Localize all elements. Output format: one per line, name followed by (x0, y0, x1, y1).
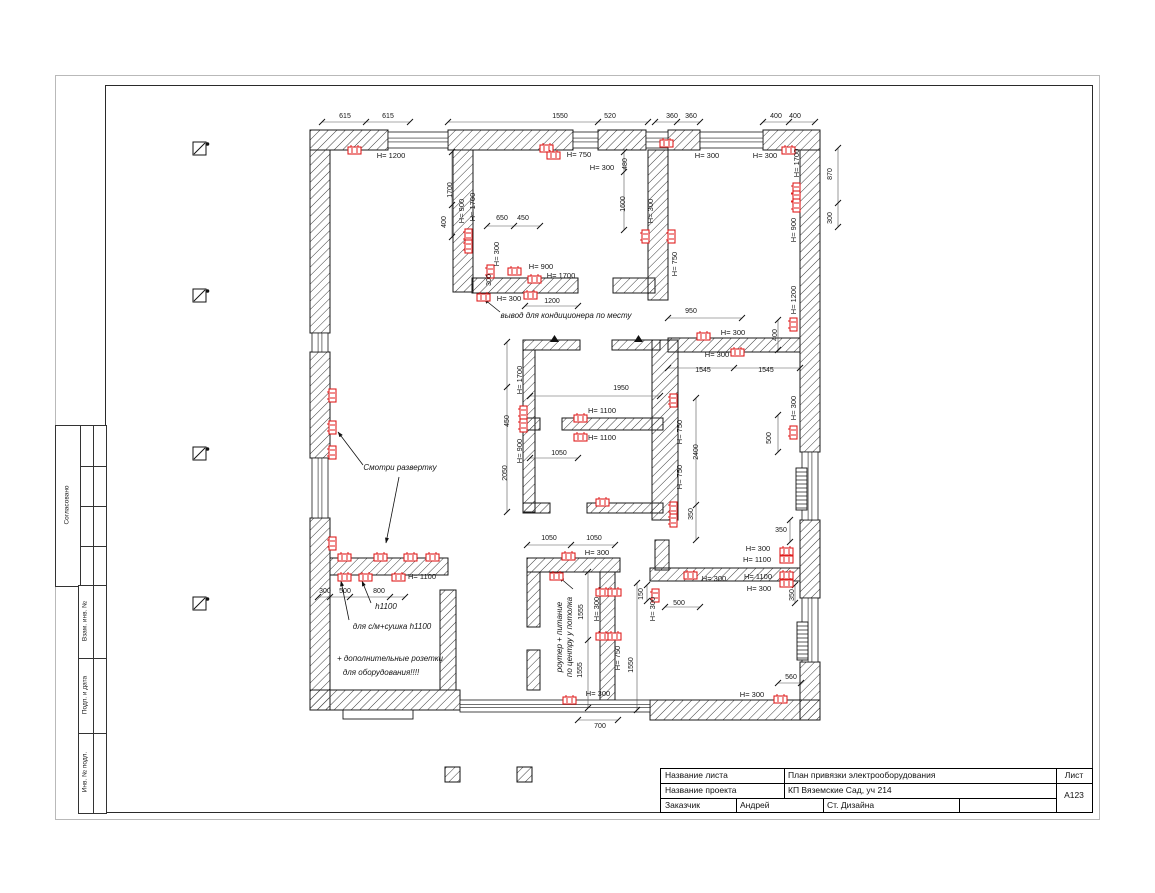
outlet-body (477, 294, 490, 301)
leader-arrow (341, 581, 349, 620)
dimension-label: 500 (766, 432, 773, 444)
dimension-label: 520 (604, 113, 616, 120)
outlet-body (642, 230, 649, 243)
height-label: H= 1700 (547, 271, 576, 280)
outlet-body (359, 574, 372, 581)
height-label: H= 300 (497, 294, 521, 303)
height-label: H= 900 (789, 218, 798, 242)
height-label: H= 300 (789, 396, 798, 420)
height-label: H= 750 (613, 646, 622, 670)
dimension-label: 560 (785, 674, 797, 681)
dimension-label: 300 (486, 274, 493, 286)
window-opening (312, 333, 328, 352)
dimension-label: 700 (594, 723, 606, 730)
outlet-body (790, 318, 797, 331)
outlet-body (562, 553, 575, 560)
annotation: по центру у потолка (565, 596, 574, 677)
dimension-label: 480 (622, 158, 629, 170)
dimension-label: 1545 (695, 367, 711, 374)
marker-dot (206, 597, 210, 601)
wall-segment (648, 150, 668, 300)
height-label: H= 300 (753, 151, 777, 160)
dimension-label: 400 (772, 329, 779, 341)
outlet-body (426, 554, 439, 561)
outlet-body (668, 230, 675, 243)
dimension-label: 1545 (758, 367, 774, 374)
power-outlet-symbol (528, 274, 541, 283)
project-value: КП Вяземские Сад, уч 214 (784, 784, 1056, 798)
window-opening (573, 132, 598, 148)
dimension-label: 1550 (552, 113, 568, 120)
dimension-label: 450 (504, 415, 511, 427)
dimension-label: 150 (638, 588, 645, 600)
power-outlet-symbol (338, 552, 351, 561)
height-label: H= 750 (675, 465, 684, 489)
wall-segment (800, 520, 820, 598)
dimension-label: 400 (770, 113, 782, 120)
outlet-body (684, 572, 697, 579)
height-label: H= 300 (740, 690, 764, 699)
power-outlet-symbol (697, 331, 710, 340)
section-marker-icon (193, 597, 209, 610)
project-label: Название проекта (661, 784, 784, 798)
height-label: H= 300 (702, 574, 726, 583)
height-label: H= 1200 (377, 151, 406, 160)
outlet-body (338, 574, 351, 581)
dimension-label: 350 (688, 508, 695, 520)
dimension-label: 360 (685, 113, 697, 120)
wall-segment (650, 700, 820, 720)
dimension-label: 1600 (620, 196, 627, 212)
wall-segment (800, 662, 820, 720)
marker-dot (206, 289, 210, 293)
height-label: H= 300 (592, 597, 601, 621)
outlet-body (670, 514, 677, 527)
height-label: H= 300 (586, 689, 610, 698)
height-label: H= 1100 (408, 572, 436, 581)
window-opening (312, 458, 328, 518)
dimension-label: 450 (517, 215, 529, 222)
power-outlet-symbol (574, 432, 587, 441)
height-label: H= 1100 (744, 572, 772, 581)
legend-hatch-square (517, 767, 532, 782)
outlet-body (338, 554, 351, 561)
door-marker (550, 335, 559, 342)
outlet-body (348, 147, 361, 154)
power-outlet-symbol (774, 694, 787, 703)
height-label: H= 750 (567, 150, 591, 159)
window-frame (573, 132, 598, 148)
dimension-label: 950 (685, 308, 697, 315)
window-frame (460, 700, 650, 712)
dimension-label: 300 (319, 588, 331, 595)
wall-segment (310, 150, 330, 333)
power-outlet-symbol (780, 546, 793, 555)
outlet-body (793, 199, 800, 212)
outlet-body (329, 421, 336, 434)
power-outlet-symbol (518, 406, 527, 419)
dimension-label: 1050 (586, 535, 602, 542)
legend-hatch-square (445, 767, 460, 782)
outlet-body (563, 697, 576, 704)
outlet-body (780, 548, 793, 555)
height-label: H= 300 (746, 544, 770, 553)
marker-dot (206, 447, 210, 451)
annotation: для с/м+сушка h1100 (353, 622, 432, 631)
window-opening (460, 700, 650, 712)
dimension-label: 500 (339, 588, 351, 595)
wall-segment (800, 150, 820, 452)
outlet-body (329, 446, 336, 459)
outlet-body (574, 415, 587, 422)
wall-segment (440, 590, 456, 690)
wall-segment (598, 130, 646, 150)
wall-segment (527, 650, 540, 690)
outlet-body (608, 633, 621, 640)
dimension-label: 1050 (551, 450, 567, 457)
window-frame (700, 132, 763, 148)
section-marker-icon (193, 142, 209, 155)
power-outlet-symbol (640, 230, 649, 243)
leader-arrow (362, 581, 371, 603)
dimension-label: 2050 (502, 465, 509, 481)
customer-value: Андрей (736, 799, 823, 812)
drawing-sheet: Согласовано Взам. инв. № Подп. и дата Ин… (0, 0, 1155, 893)
dimension-label: 1555 (577, 662, 584, 678)
radiator-symbol (796, 468, 807, 510)
leader-arrow (386, 477, 399, 543)
outlet-body (596, 633, 609, 640)
studio-value: Ст. Дизайна (823, 799, 959, 812)
outlet-body (596, 499, 609, 506)
dimension-label: 1950 (613, 385, 629, 392)
wall-segment (527, 572, 540, 627)
outlet-body (392, 574, 405, 581)
outlet-body (547, 152, 560, 159)
outlet-body (528, 276, 541, 283)
dimension-label: 1200 (544, 298, 560, 305)
height-label: H= 300 (648, 597, 657, 621)
window-opening (700, 132, 763, 148)
power-outlet-symbol (596, 497, 609, 506)
dimension-label: 400 (789, 113, 801, 120)
power-outlet-symbol (426, 552, 439, 561)
wall-segment (655, 540, 669, 570)
section-marker-icon (193, 289, 209, 302)
annotation: роутер + питание (555, 601, 564, 673)
outlet-body (780, 556, 793, 563)
annotation: Смотри развертку (363, 463, 437, 472)
height-label: H= 300 (646, 199, 655, 223)
radiator-symbol (797, 622, 808, 660)
height-label: H= 900 (515, 439, 524, 463)
outlet-body (404, 554, 417, 561)
height-label: H= 1100 (588, 433, 616, 442)
dimension-label: 1550 (628, 657, 635, 673)
outlet-body (731, 349, 744, 356)
outlet-body (608, 589, 621, 596)
floor-plan: 6156151550520360360400400H= 1200H= 750H=… (0, 0, 1155, 893)
annotation: вывод для кондиционера по месту (501, 311, 633, 320)
outlet-body (540, 145, 553, 152)
height-label: H= 300 (747, 584, 771, 593)
dimension-label: 350 (775, 527, 787, 534)
outlet-body (790, 426, 797, 439)
entrance-step (343, 710, 413, 719)
power-outlet-symbol (574, 413, 587, 422)
power-outlet-symbol (788, 426, 797, 439)
outlet-body (508, 268, 521, 275)
sheet-name-label: Название листа (661, 769, 784, 783)
height-label: H= 750 (670, 252, 679, 276)
dimension-label: 350 (789, 589, 796, 601)
annotation: для оборудования!!!! (343, 668, 420, 677)
sheet-name-value: План привязки электрооборудования (784, 769, 1056, 783)
section-marker-icon (193, 447, 209, 460)
outlet-body (670, 394, 677, 407)
height-label: H= 900 (529, 262, 553, 271)
outlet-body (520, 419, 527, 432)
wall-segment (523, 503, 550, 513)
dimension-label: 615 (382, 113, 394, 120)
outlet-body (697, 333, 710, 340)
height-label: H= 750 (675, 420, 684, 444)
power-outlet-symbol (563, 695, 576, 704)
outlet-body (660, 140, 673, 147)
outlet-body (774, 696, 787, 703)
outlet-body (574, 434, 587, 441)
height-label: H= 300 (492, 242, 501, 266)
dimension-label: 300 (827, 212, 834, 224)
dimension-label: 800 (373, 588, 385, 595)
wall-segment (448, 130, 573, 150)
height-label: H= 1100 (743, 555, 771, 564)
outlet-body (780, 572, 793, 579)
door-marker (634, 335, 643, 342)
window-frame (388, 132, 448, 148)
dimension-label: 2400 (693, 444, 700, 460)
dimension-label: 1555 (578, 604, 585, 620)
title-block: Название листа План привязки электрообор… (660, 768, 1093, 813)
outlet-body (329, 537, 336, 550)
power-outlet-symbol (562, 551, 575, 560)
outlet-body (780, 580, 793, 587)
height-label: H= 300 (590, 163, 614, 172)
height-label: H= 900 (457, 199, 466, 223)
outlet-body (374, 554, 387, 561)
outlet-body (596, 589, 609, 596)
customer-label: Заказчик (661, 799, 736, 812)
height-label: H= 1700 (468, 193, 477, 222)
dimension-label: 1700 (447, 182, 454, 198)
annotation: + дополнительные розетки (337, 654, 444, 663)
annotation: h1100 (375, 602, 397, 611)
window-frame (312, 333, 328, 352)
dimension-label: 500 (673, 600, 685, 607)
marker-dot (206, 142, 210, 146)
outlet-body (550, 573, 563, 580)
dimension-label: 650 (496, 215, 508, 222)
power-outlet-symbol (508, 266, 521, 275)
wall-segment (310, 690, 460, 710)
dimension-label: 360 (666, 113, 678, 120)
window-frame (312, 458, 328, 518)
height-label: H= 1700 (515, 366, 524, 395)
power-outlet-symbol (404, 552, 417, 561)
dimension-label: 1050 (541, 535, 557, 542)
list-label: Лист (1056, 769, 1092, 783)
height-label: H= 1100 (588, 406, 616, 415)
outlet-body (520, 406, 527, 419)
wall-segment (310, 352, 330, 458)
dimension-label: 870 (827, 168, 834, 180)
sheet-number: А123 (1056, 789, 1092, 805)
title-block-line (959, 798, 960, 812)
power-outlet-symbol (374, 552, 387, 561)
dimension-label: 400 (441, 216, 448, 228)
dimension-label: 615 (339, 113, 351, 120)
height-label: H= 300 (705, 350, 729, 359)
outlet-body (465, 240, 472, 253)
height-label: H= 300 (695, 151, 719, 160)
outlet-body (524, 292, 537, 299)
outlet-body (329, 389, 336, 402)
height-label: H= 1200 (789, 286, 798, 315)
window-opening (388, 132, 448, 148)
power-outlet-symbol (788, 318, 797, 331)
outlet-body (670, 502, 677, 515)
height-label: H= 300 (721, 328, 745, 337)
height-label: H= 1700 (792, 149, 801, 178)
power-outlet-symbol (518, 419, 527, 432)
height-label: H= 300 (585, 548, 609, 557)
leader-arrow (338, 432, 363, 465)
